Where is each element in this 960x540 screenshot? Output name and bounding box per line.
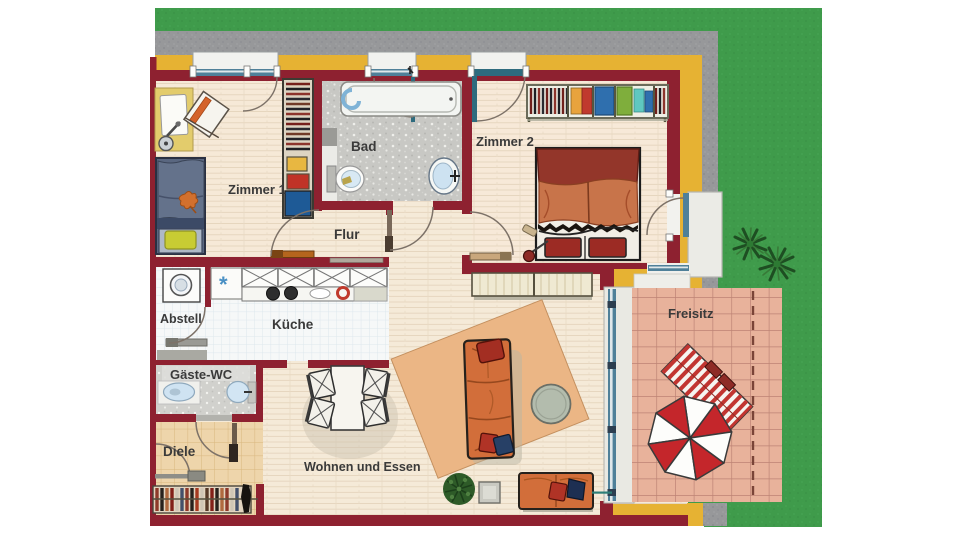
svg-text:Zimmer 1: Zimmer 1 bbox=[228, 182, 286, 197]
svg-text:Zimmer 2: Zimmer 2 bbox=[476, 134, 534, 149]
svg-text:Flur: Flur bbox=[334, 227, 360, 242]
svg-text:Küche: Küche bbox=[272, 317, 314, 332]
svg-text:Abstell: Abstell bbox=[160, 312, 202, 326]
svg-text:Wohnen und Essen: Wohnen und Essen bbox=[304, 460, 421, 474]
svg-text:Diele: Diele bbox=[163, 444, 196, 459]
svg-text:*: * bbox=[219, 272, 228, 297]
svg-text:Bad: Bad bbox=[351, 139, 377, 154]
svg-text:Freisitz: Freisitz bbox=[668, 306, 714, 321]
svg-text:Gäste-WC: Gäste-WC bbox=[170, 367, 233, 382]
